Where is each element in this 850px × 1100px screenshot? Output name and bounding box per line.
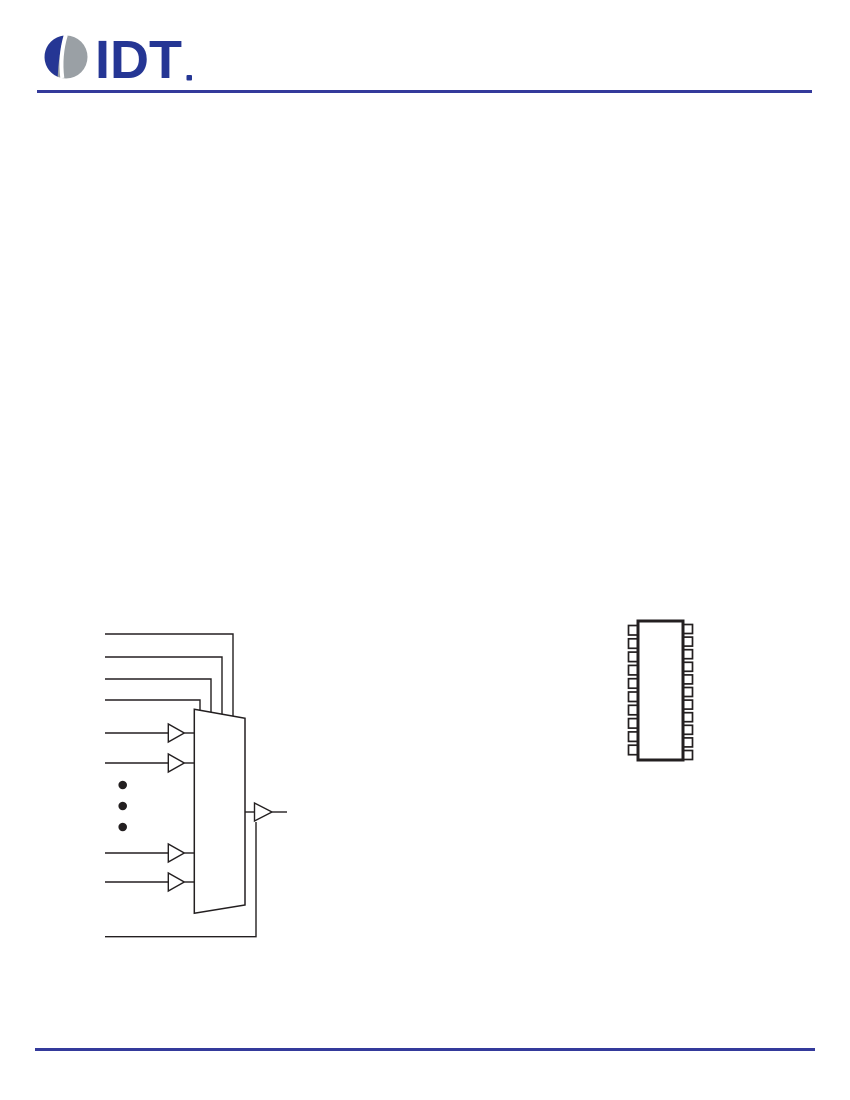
ellipsis-dot-icon xyxy=(118,781,127,790)
select-line xyxy=(105,700,200,713)
output-buffer-icon xyxy=(255,803,273,821)
header-rule xyxy=(37,90,812,93)
input-buffer-icon xyxy=(168,873,184,891)
mux-select-lines xyxy=(105,634,233,719)
mux-input-lines xyxy=(105,733,196,882)
mux-diagram xyxy=(95,620,300,950)
logo-text: IDT xyxy=(95,30,182,90)
mux-output xyxy=(245,803,287,821)
ellipsis-dots xyxy=(118,781,127,832)
mux-body xyxy=(194,709,245,913)
footer-rule xyxy=(35,1048,815,1051)
idt-logo: IDT xyxy=(38,30,208,90)
registered-mark-icon xyxy=(187,75,193,81)
package-body xyxy=(638,621,683,760)
idt-logo-circle-icon xyxy=(45,35,88,78)
ellipsis-dot-icon xyxy=(118,802,127,811)
input-buffer-icon xyxy=(168,844,184,862)
input-buffer-icon xyxy=(168,754,184,772)
ellipsis-dot-icon xyxy=(118,823,127,832)
datasheet-page: IDT xyxy=(0,0,850,1100)
mux-input-buffers xyxy=(168,724,184,891)
select-line xyxy=(105,657,222,717)
select-line xyxy=(105,634,233,719)
package-diagram xyxy=(625,615,700,775)
input-buffer-icon xyxy=(168,724,184,742)
